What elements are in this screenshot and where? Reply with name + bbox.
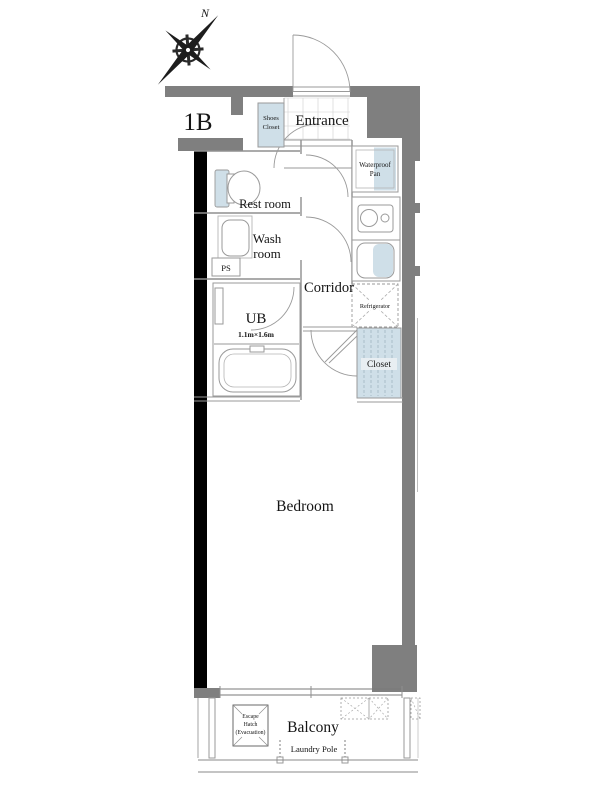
room-label-balcony: Balcony xyxy=(287,719,339,736)
compass-north-label: N xyxy=(200,6,210,20)
closet-label: Closet xyxy=(367,360,391,370)
waterproof-pan-label-1: Waterproof xyxy=(359,161,391,169)
wall-top-right-bar xyxy=(350,86,420,97)
pipe-space: PS xyxy=(212,258,240,276)
refrigerator-label: Refrigerator xyxy=(360,303,390,310)
room-label-washroom-2: room xyxy=(253,246,280,261)
bathtub-icon xyxy=(219,349,296,392)
bathtub-handle xyxy=(250,346,264,352)
room-label-ub: UB xyxy=(246,311,267,327)
ps-label: PS xyxy=(221,263,231,273)
entrance-threshold xyxy=(293,87,350,96)
wall-right-upper xyxy=(402,138,420,161)
wall-ub-bottom xyxy=(194,397,300,401)
entrance-door xyxy=(293,35,350,96)
ub-size-label: 1.1m×1.6m xyxy=(238,330,275,339)
wall-notch-2 xyxy=(415,266,420,276)
wall-bottom-right-mass xyxy=(372,645,417,692)
shoes-closet: Shoes Closet xyxy=(258,103,284,147)
laundry-pole-label: Laundry Pole xyxy=(291,744,338,754)
unit-bath: UB 1.1m×1.6m xyxy=(213,283,300,396)
wall-right-strip xyxy=(402,161,415,645)
washroom-door-arc xyxy=(306,217,351,262)
waterproof-pan-blue xyxy=(374,148,396,191)
entrance-door-arc xyxy=(293,35,350,92)
kitchen-sink-blue xyxy=(373,244,393,277)
restroom-door-arc xyxy=(306,155,348,197)
room-label-washroom-1: Wash xyxy=(253,231,282,246)
waterproof-pan-label-2: Pan xyxy=(370,170,381,178)
shoes-closet-label-2: Closet xyxy=(263,124,280,131)
wall-top-left xyxy=(165,86,293,97)
room-label-corridor: Corridor xyxy=(304,280,354,296)
unit-type-label: 1B xyxy=(183,109,212,136)
balcony-post-right xyxy=(404,698,410,758)
room-label-bedroom: Bedroom xyxy=(276,498,334,515)
washbasin-icon xyxy=(222,220,249,256)
wall-below-label xyxy=(178,138,243,151)
wall-below-closet xyxy=(357,398,403,402)
room-label-entrance: Entrance xyxy=(295,113,349,129)
ac-pad-3 xyxy=(411,698,420,719)
washroom-fixtures xyxy=(218,216,252,258)
wall-notch-1 xyxy=(415,203,420,213)
escape-hatch-label-3: (Evacuation) xyxy=(236,729,266,736)
wall-left-black xyxy=(194,151,207,688)
ub-ledge xyxy=(215,288,223,324)
floor-plan-page: { "unit": { "type_label": "1B" }, "compa… xyxy=(0,0,600,800)
escape-hatch-label-2: Hatch xyxy=(244,722,258,728)
wall-bottom-left-cap xyxy=(194,688,220,698)
wall-stub xyxy=(231,97,243,115)
balcony-post-left xyxy=(209,698,215,758)
burner-small-icon xyxy=(381,214,389,222)
burner-large-icon xyxy=(361,210,378,227)
ac-pad-3-cross xyxy=(411,698,420,719)
ac-pad-1-cross xyxy=(341,698,369,719)
room-labels: 1B Entrance Rest room Wash room Corridor… xyxy=(183,109,354,754)
bedroom-door-leaf xyxy=(325,330,357,363)
kitchen-column: Waterproof Pan Refrigerator Closet xyxy=(352,146,401,398)
escape-hatch-label-1: Escape xyxy=(242,714,259,720)
wall-top-right-mass xyxy=(367,97,420,138)
room-label-restroom: Rest room xyxy=(239,197,291,211)
shoes-closet-label-1: Shoes xyxy=(263,115,279,122)
floor-plan-canvas: N xyxy=(0,0,600,800)
ac-pad-2-cross xyxy=(369,698,388,719)
